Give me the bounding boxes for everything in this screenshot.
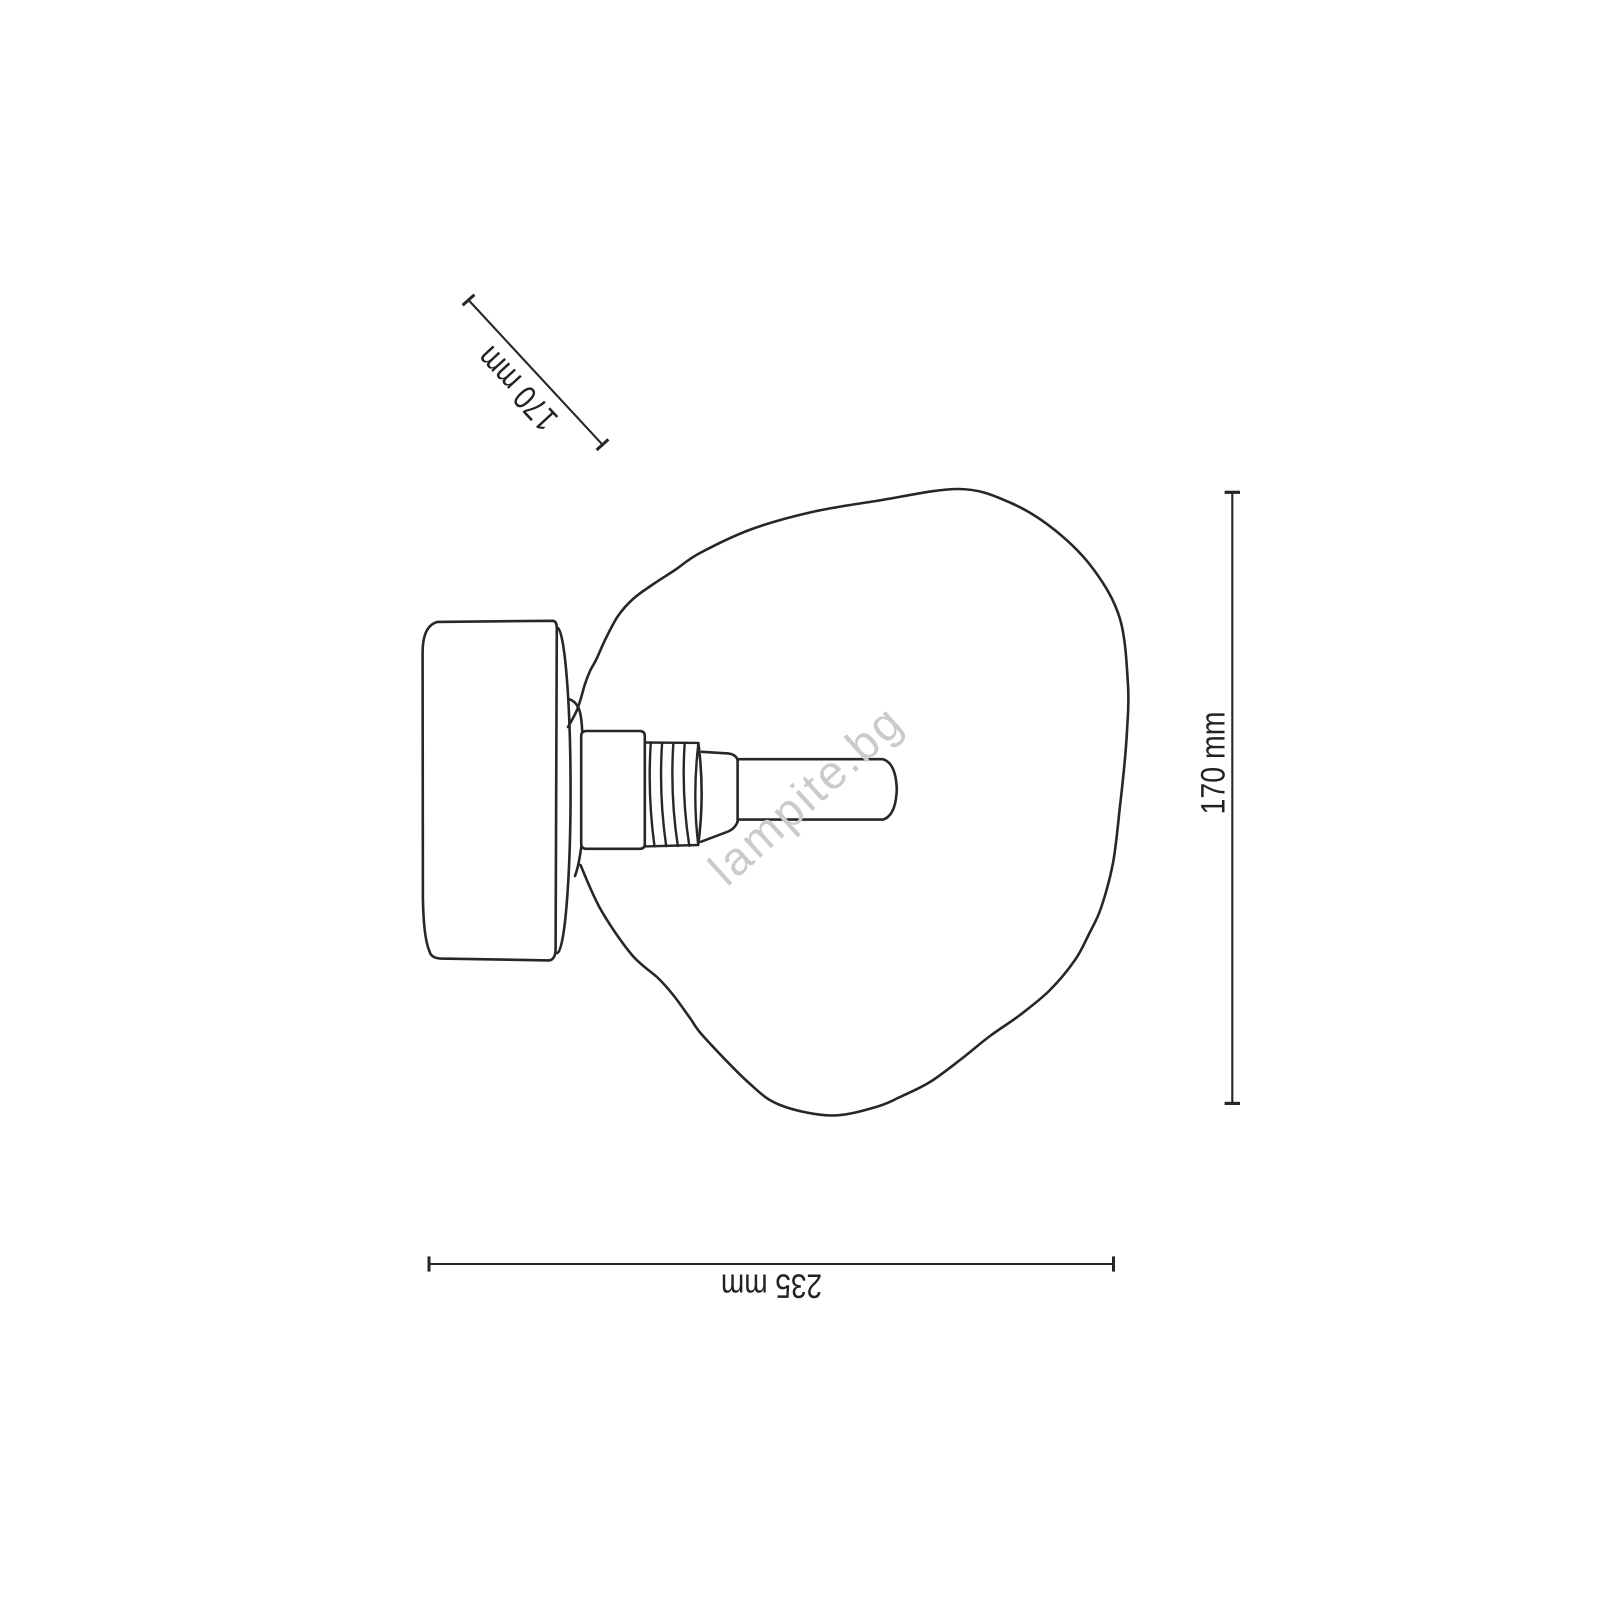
svg-text:235 mm: 235 mm: [721, 1267, 822, 1305]
svg-text:lampite.bg: lampite.bg: [698, 694, 913, 895]
svg-text:170 mm: 170 mm: [1195, 712, 1233, 815]
